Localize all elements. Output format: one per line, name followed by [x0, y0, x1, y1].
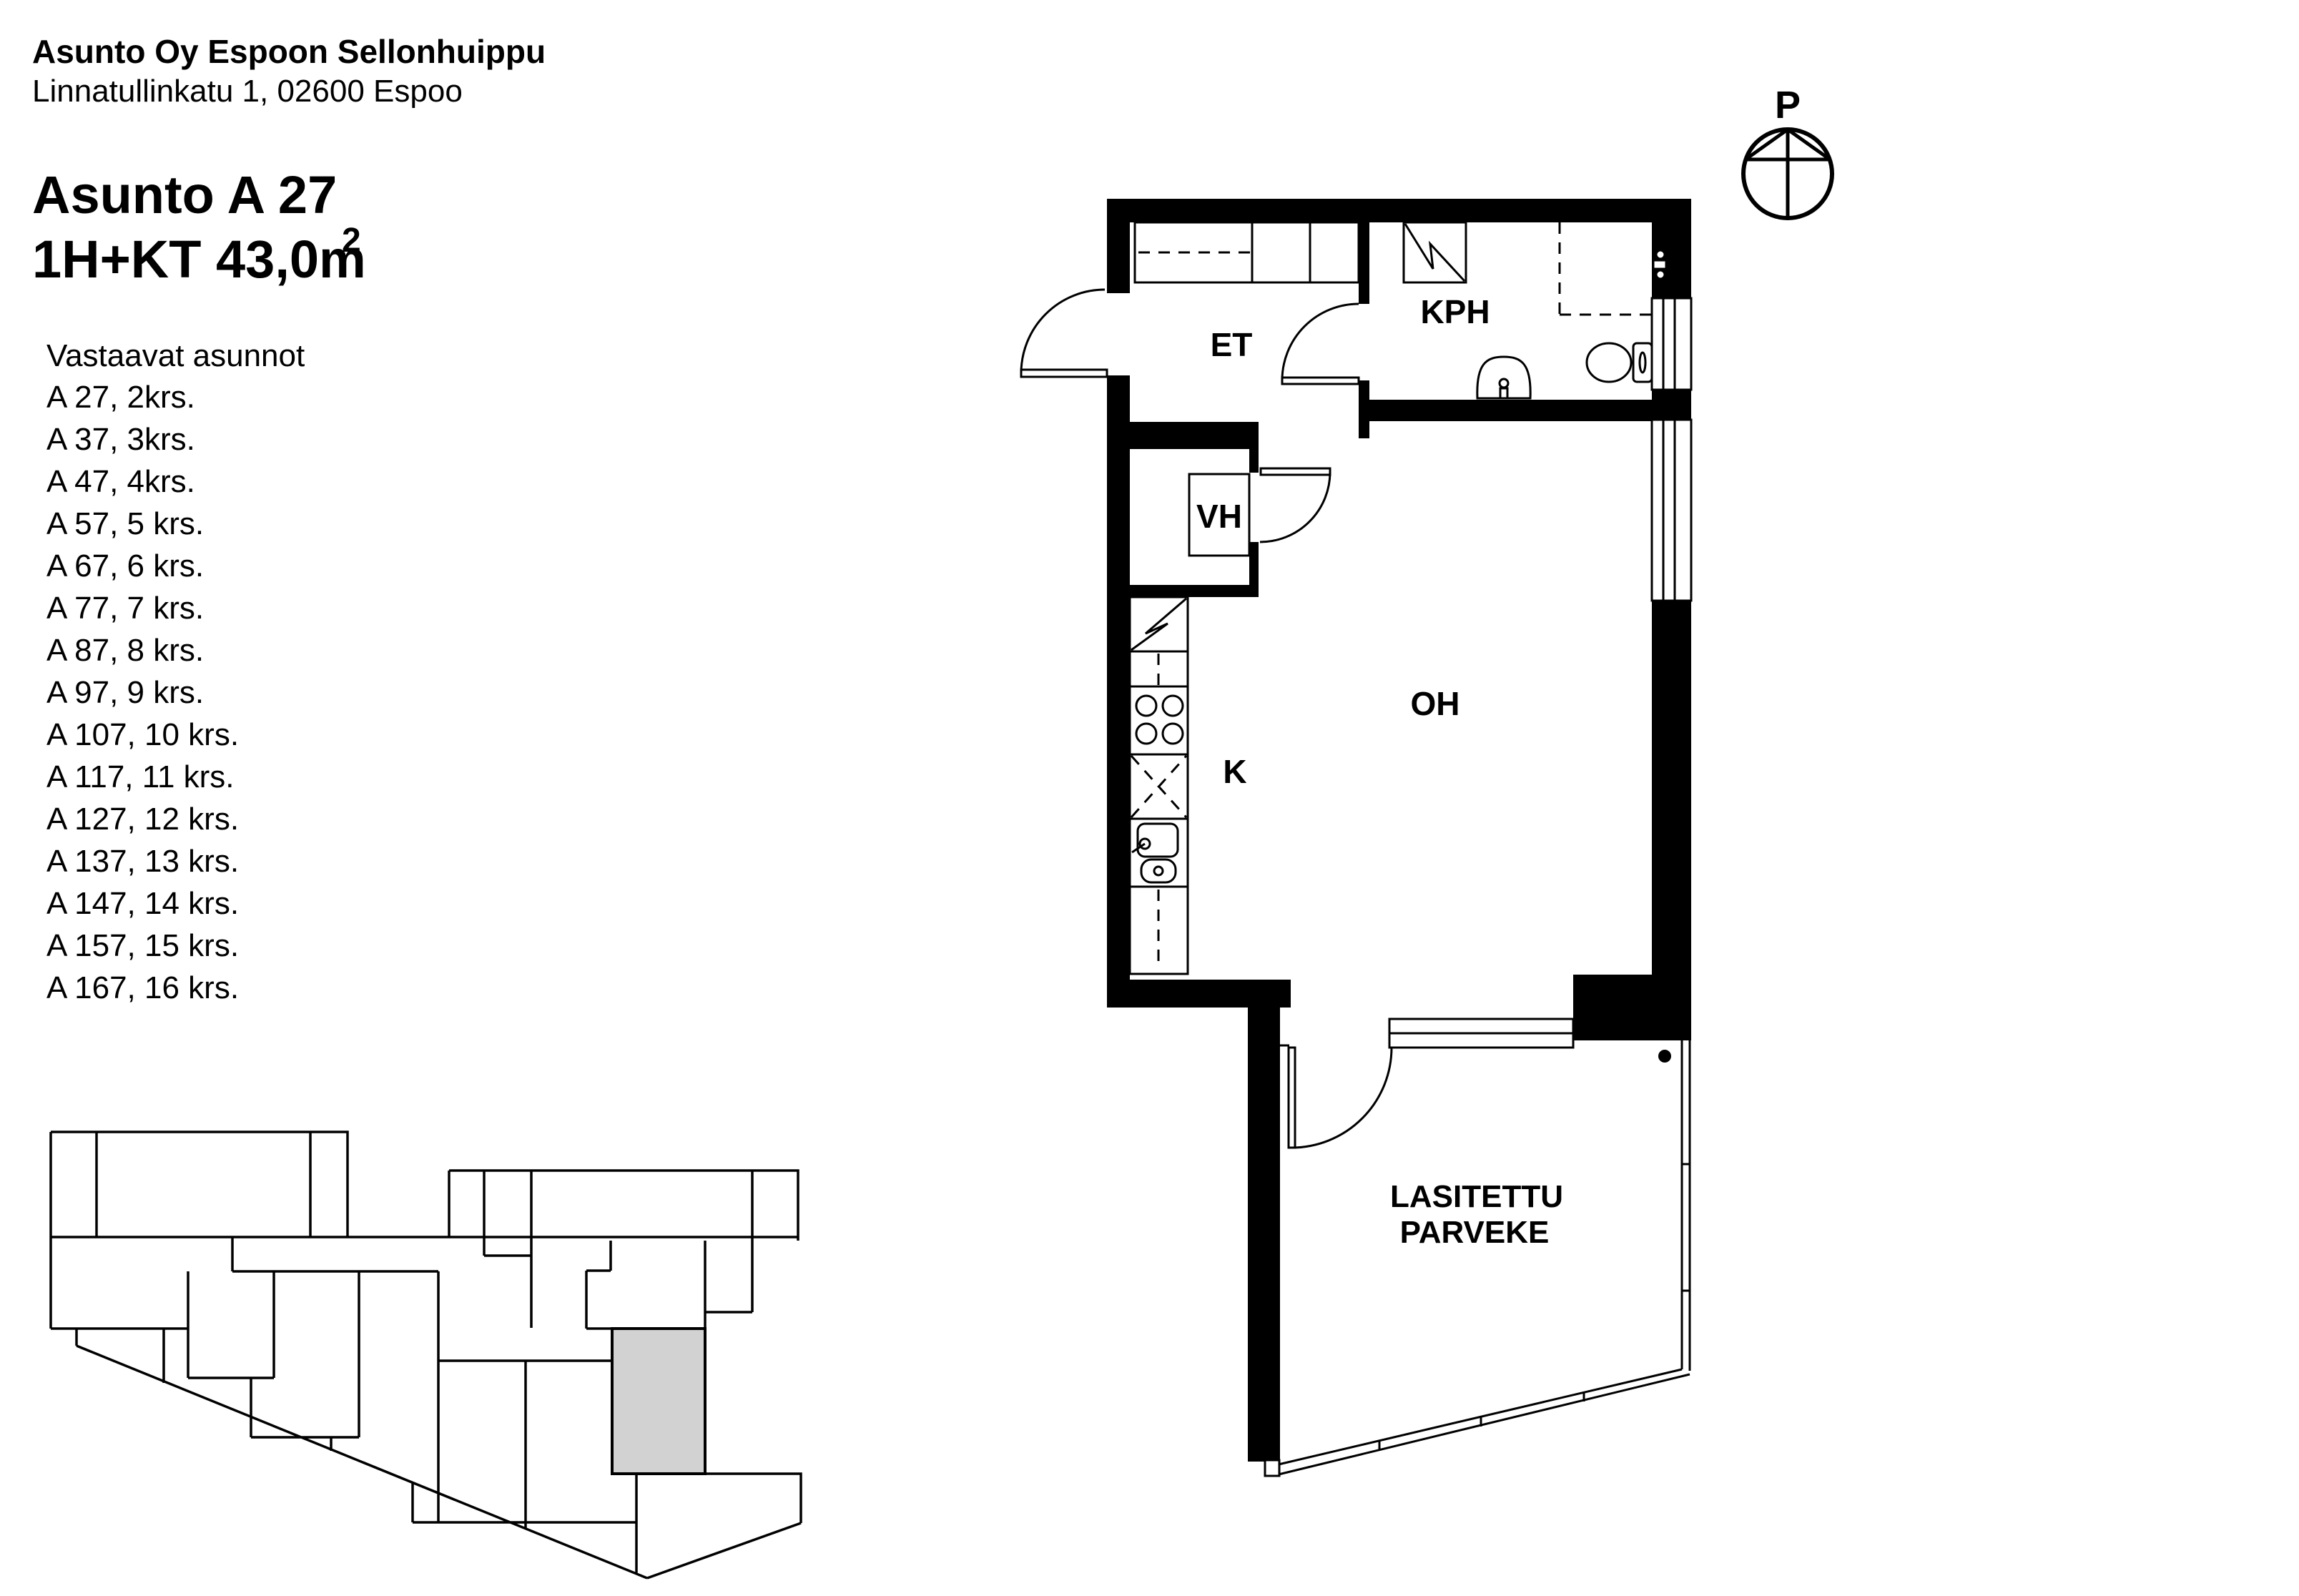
shower-enclosure-icon — [1560, 222, 1654, 315]
wall-bathroom-bottom — [1359, 400, 1652, 421]
balcony-glazing-bottom-icon — [1279, 1369, 1690, 1474]
balcony-door-leaf — [1289, 1048, 1295, 1148]
wall-outer-left-main — [1107, 375, 1130, 1008]
room-label-bathroom: KPH — [1420, 293, 1490, 330]
wall-outer-right-pier — [1652, 390, 1691, 420]
room-label-living-room: OH — [1411, 685, 1460, 722]
wall-outer-left-upper — [1107, 222, 1130, 293]
entry-door-swing-icon — [1021, 290, 1105, 373]
shower-faucet-body — [1653, 260, 1666, 269]
closet-door-swing-icon — [1260, 472, 1330, 542]
entrance-fixtures — [1135, 222, 1359, 282]
kitchen-fixtures — [1130, 597, 1188, 974]
apartment-spec-superscript: 2 — [342, 222, 361, 260]
list-item: A 67, 6 krs. — [46, 548, 204, 583]
room-label-closet: VH — [1196, 498, 1242, 535]
list-item: A 147, 14 krs. — [46, 886, 239, 921]
wall-vh-right-lower — [1249, 542, 1259, 586]
wall-kitchen-bottom — [1107, 980, 1291, 1008]
shower-faucet-icon — [1653, 250, 1666, 279]
bathroom-door-leaf — [1282, 378, 1359, 384]
shower-faucet-knob — [1656, 250, 1665, 259]
list-item: A 107, 10 krs. — [46, 717, 239, 752]
stove — [1130, 686, 1188, 754]
balcony-door-swing-icon — [1291, 1048, 1392, 1148]
list-item: A 117, 11 krs. — [46, 759, 235, 794]
compass: P — [1743, 84, 1832, 218]
toilet-icon — [1587, 343, 1652, 382]
key-map-highlighted-unit — [612, 1329, 705, 1474]
toilet-flush — [1640, 353, 1645, 373]
room-label-balcony-line2: PARVEKE — [1400, 1215, 1550, 1250]
list-item: A 127, 12 krs. — [46, 802, 239, 837]
shower-faucet-knob — [1656, 270, 1665, 279]
floor-plan-sheet: Asunto Oy Espoon Sellonhuippu Linnatulli… — [0, 0, 2299, 1596]
title-block: Asunto Oy Espoon Sellonhuippu Linnatulli… — [32, 33, 546, 289]
list-item: A 137, 13 krs. — [46, 844, 239, 879]
balcony — [1265, 1040, 1690, 1476]
similar-apartments-list: Vastaavat asunnot A 27, 2krs. A 37, 3krs… — [46, 338, 305, 1005]
compass-north-label: P — [1775, 84, 1801, 127]
kitchen-sink-icon — [1130, 819, 1188, 887]
list-item: A 157, 15 krs. — [46, 928, 239, 963]
wall-et-kph-divider-upper — [1359, 222, 1369, 304]
doors — [1021, 290, 1392, 1148]
floor-plan-canvas: Asunto Oy Espoon Sellonhuippu Linnatulli… — [0, 0, 2299, 1596]
similar-apartments-heading: Vastaavat asunnot — [46, 338, 305, 373]
apartment-title: Asunto A 27 — [32, 165, 337, 225]
kitchen-sink-drain — [1154, 867, 1163, 875]
closet-door-leaf — [1261, 468, 1330, 475]
wall-outer-top — [1107, 199, 1691, 222]
wall-bottom-right-block — [1573, 975, 1691, 1040]
key-map — [51, 1132, 801, 1578]
floor-plan: ET KPH VH K OH LASITETTU PARVEKE — [1021, 199, 1691, 1476]
apartment-spec: 1H+KT 43,0m — [32, 230, 366, 289]
sink-tap — [1500, 388, 1507, 398]
balcony-glazing-post — [1265, 1460, 1279, 1476]
window-bathroom — [1652, 298, 1691, 390]
list-item: A 47, 4krs. — [46, 464, 195, 499]
sink-drain — [1500, 379, 1508, 388]
wall-vh-right-upper — [1249, 449, 1259, 473]
room-label-balcony-line1: LASITETTU — [1390, 1179, 1563, 1214]
list-item: A 87, 8 krs. — [46, 633, 204, 668]
drain-pipe-icon — [1658, 1050, 1671, 1063]
sink-icon — [1477, 357, 1530, 398]
wall-vh-bottom — [1130, 585, 1259, 597]
wall-balcony-left — [1248, 1008, 1280, 1462]
room-label-entrance: ET — [1211, 326, 1253, 363]
balcony-glazing-right-icon — [1682, 1040, 1690, 1371]
list-item: A 37, 3krs. — [46, 422, 195, 457]
entry-door-leaf — [1021, 370, 1107, 377]
toilet-bowl — [1587, 343, 1631, 382]
room-label-kitchen: K — [1223, 753, 1246, 790]
list-item: A 27, 2krs. — [46, 380, 195, 415]
company-name: Asunto Oy Espoon Sellonhuippu — [32, 33, 546, 70]
wall-vh-top — [1130, 422, 1259, 449]
list-item: A 97, 9 krs. — [46, 675, 204, 710]
wall-outer-right-main — [1652, 601, 1691, 975]
walls — [1107, 199, 1691, 1462]
wall-et-kph-divider-lower — [1359, 380, 1369, 438]
list-item: A 167, 16 krs. — [46, 970, 239, 1005]
address: Linnatullinkatu 1, 02600 Espoo — [32, 74, 463, 109]
list-item: A 77, 7 krs. — [46, 591, 204, 626]
list-item: A 57, 5 krs. — [46, 506, 204, 541]
window-living-room — [1652, 420, 1691, 601]
bathroom-door-swing-icon — [1282, 304, 1359, 380]
